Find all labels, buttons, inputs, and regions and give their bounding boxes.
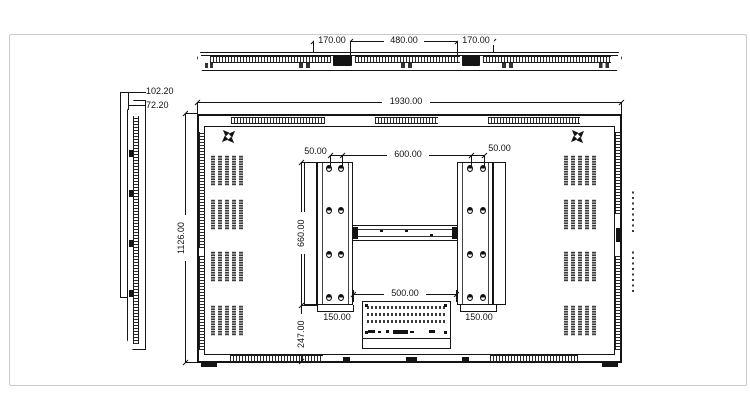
top-view-vent-strip [355,56,460,63]
bracket-inner-line [348,163,349,304]
crossbar-bolt [452,227,457,239]
bracket-inner-line [462,163,463,304]
dim-label-depth-body: 72.20 [146,100,169,110]
io-connector-mark [378,331,381,333]
dim-label-top-left: 170.00 [314,35,350,45]
crossbar-mark [380,230,383,232]
mount-hole [480,165,486,172]
vent-slot-group [211,199,245,230]
fan-icon [221,129,236,144]
mount-hole [338,294,344,301]
side-view-detail-block [129,240,133,247]
top-view-mount-hook [462,55,480,66]
dim-label-overall-height: 1126.00 [175,215,187,261]
side-view-detail-block [129,190,133,197]
io-corner-mark [444,331,447,334]
dim-label-depth-total: 102.20 [146,86,174,96]
rear-left-vent [199,256,205,350]
vent-slot-group [564,155,598,186]
mount-hole [467,165,473,172]
top-view-mount-hook [333,55,352,66]
rear-right-vent [615,256,621,350]
dim-ext [317,305,318,312]
dim-label-rail-gap: 500.00 [384,288,426,298]
crossbar-mark [430,234,433,236]
rear-left-vent [199,132,205,248]
dim-ext-bottom [185,362,197,363]
io-connector-mark [393,330,408,334]
dim-label-overall-width: 1930.00 [382,96,430,106]
fan-icon [570,129,585,144]
dim-ext-top [185,113,197,114]
top-view-foot-mark [401,63,412,68]
rear-top-vent [375,117,438,124]
dim-label-hole-pitch-right: 50.00 [486,143,513,153]
mount-hole [480,207,486,214]
io-divider-line [362,338,451,339]
rear-right-vent [615,132,621,214]
mount-hole [326,165,332,172]
top-view-foot-mark [502,63,513,68]
io-connector-mark [410,331,414,333]
crossbar-bolt [353,227,358,239]
dim-label-top-center: 480.00 [384,35,424,45]
mount-hole [467,294,473,301]
bracket-inner-line [322,163,323,304]
io-vent-row [367,306,446,309]
mount-hole [338,207,344,214]
vent-slot-group [211,251,245,282]
dim-ext [342,155,343,166]
mount-hole [467,207,473,214]
rear-foot [201,362,217,367]
mount-hole [338,165,344,172]
io-corner-mark [444,304,447,307]
vent-slot-group [564,305,598,336]
rear-bottom-mark [343,357,350,361]
io-vent-row [367,313,446,316]
dim-line-depth-total [129,92,146,93]
vent-slot-group [564,199,598,230]
rear-bottom-vent [490,355,578,362]
side-view-detail-block [129,150,133,157]
vent-slot-group [564,251,598,282]
io-connector-mark [368,330,375,333]
mount-hole [326,294,332,301]
mount-hole [326,207,332,214]
technical-drawing-canvas: 102.20 72.20 1126.00 170.00 4 [0,0,750,402]
dim-label-bottom-offset: 247.00 [295,314,307,354]
dim-label-bracket-height: 660.00 [295,212,307,254]
rear-foot [602,362,618,367]
dim-ext [301,305,317,306]
top-view-vent-strip [483,56,611,63]
mount-hole [480,251,486,258]
mount-hole [338,251,344,258]
dim-label-hole-pitch-left: 50.00 [302,146,329,156]
dim-ext [301,162,317,163]
mount-hole [467,251,473,258]
rear-bottom-mark [406,357,417,361]
mount-hole [326,251,332,258]
crossbar [353,225,457,241]
dim-label-bracket-width-left: 150.00 [318,312,356,322]
dim-label-hole-span: 600.00 [387,149,429,159]
io-corner-mark [365,304,368,307]
vent-slot-group [211,305,245,336]
dim-ext [471,155,472,166]
dim-line-depth-body [128,105,146,106]
top-view-foot-mark [205,63,213,68]
rear-bottom-vent [230,355,323,362]
io-vent-row [367,320,446,323]
side-view-vent-strip [133,116,139,344]
rear-bottom-mark [462,357,469,361]
dim-ext [484,155,485,166]
dim-ext-depth-body [128,105,129,110]
mount-hole [480,294,486,301]
dim-label-bracket-width-right: 150.00 [460,312,498,322]
dim-ext [621,102,622,114]
io-connector-mark [429,330,435,333]
top-view-vent-strip [210,56,331,63]
dim-ext [353,305,354,312]
bracket-inner-line [488,163,489,304]
dim-ext [496,305,497,312]
dim-ext [330,155,331,166]
top-view-foot-mark [599,63,609,68]
top-view-foot-mark [299,63,310,68]
dim-ext [460,305,461,312]
crossbar-mark [405,230,408,232]
mount-rail-right [493,162,506,305]
side-view-detail-block [129,290,133,297]
io-connector-mark [386,330,389,333]
crossbar-inner-line [353,236,457,237]
side-annotation-marks [632,188,634,232]
dim-label-top-right: 170.00 [458,35,494,45]
rear-top-vent [488,117,580,124]
dim-ext [350,41,351,55]
side-annotation-marks [632,248,634,292]
rear-right-edge-block [616,228,620,242]
rear-top-vent [231,117,325,124]
vent-slot-group [211,155,245,186]
dim-ext [197,102,198,114]
